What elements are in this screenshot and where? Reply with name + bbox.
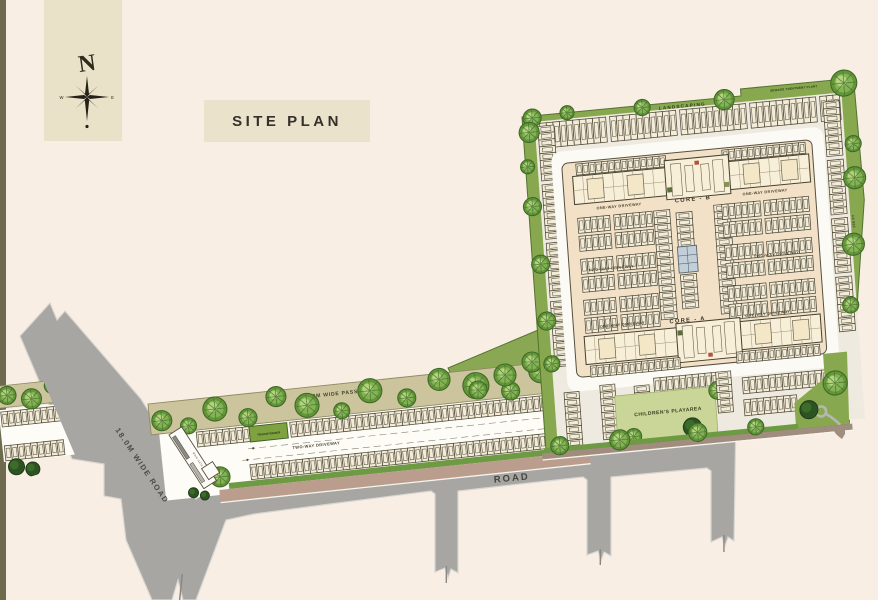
- svg-text:SITE PLAN: SITE PLAN: [232, 113, 342, 130]
- svg-text:E: E: [111, 95, 114, 100]
- svg-text:W: W: [60, 95, 64, 100]
